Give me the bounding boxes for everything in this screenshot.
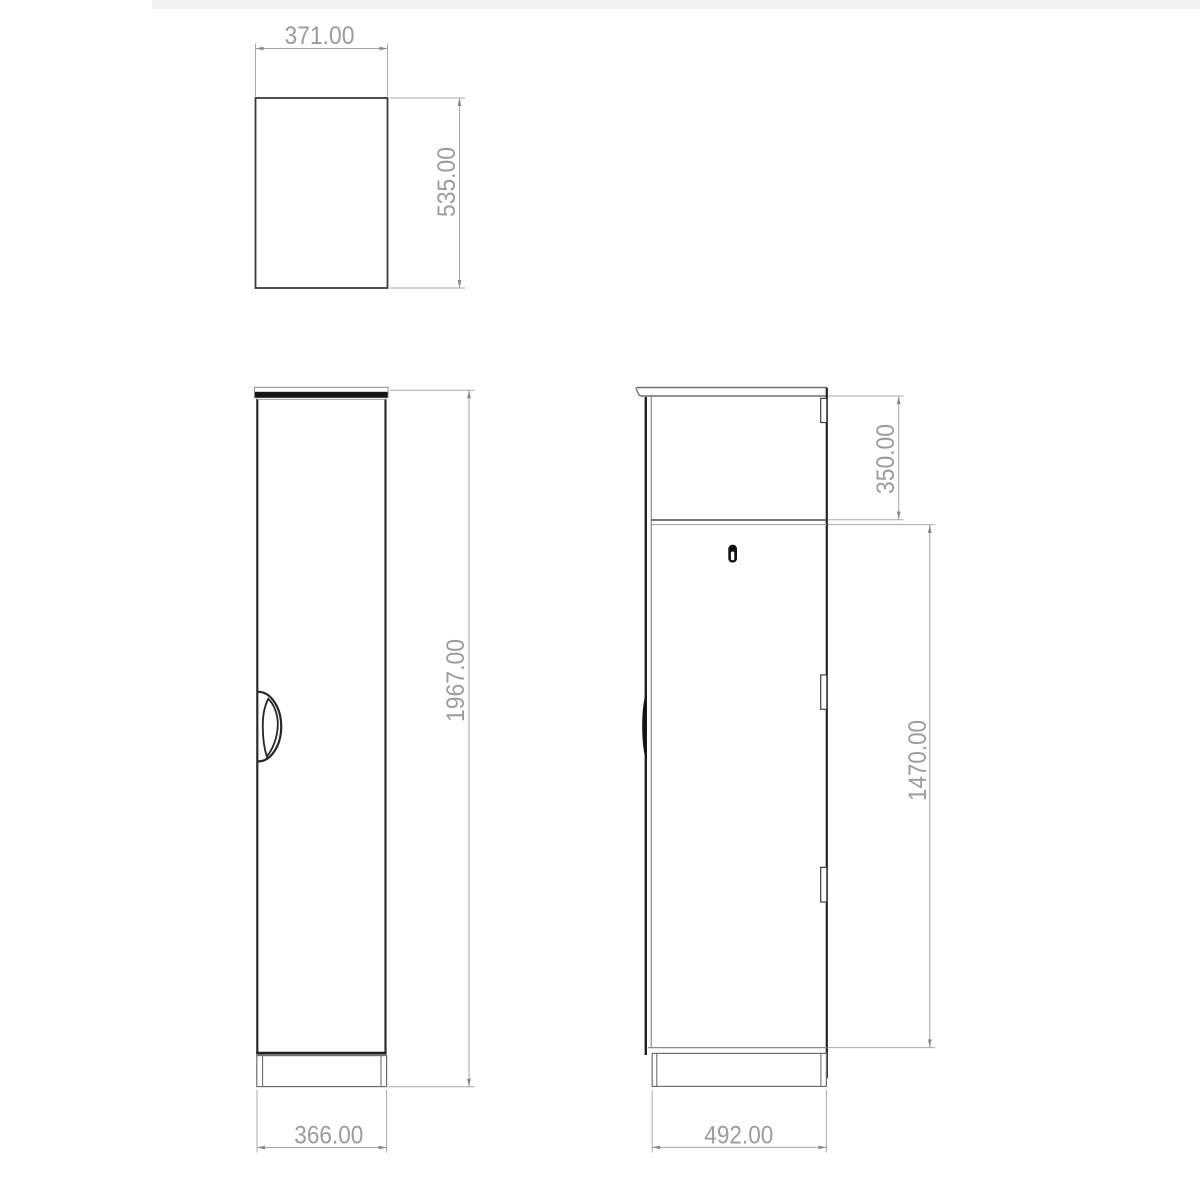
svg-text:366.00: 366.00: [294, 1121, 363, 1149]
svg-text:1967.00: 1967.00: [442, 639, 470, 722]
svg-text:1470.00: 1470.00: [904, 720, 932, 801]
svg-text:535.00: 535.00: [433, 147, 461, 217]
svg-text:350.00: 350.00: [872, 424, 900, 494]
svg-text:371.00: 371.00: [285, 22, 355, 50]
svg-text:492.00: 492.00: [704, 1121, 773, 1149]
